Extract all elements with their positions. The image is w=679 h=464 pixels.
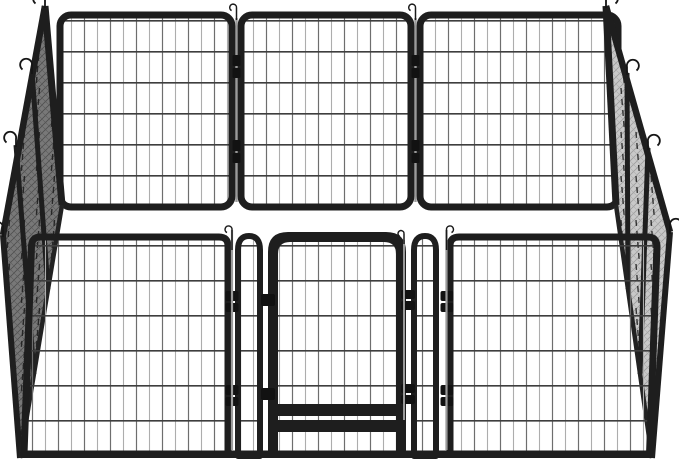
front-wall [20, 226, 657, 458]
anchor-hook-icon [648, 135, 660, 150]
playpen-image [0, 0, 679, 464]
front-bottom-rail [20, 451, 653, 459]
gate-door [261, 231, 415, 458]
product-photo [0, 0, 679, 464]
back-panel [420, 15, 618, 207]
anchor-hook-icon [4, 132, 16, 147]
gate-section-right [414, 236, 436, 456]
gate-hinge [261, 294, 275, 306]
gate-hinge [261, 388, 275, 400]
back-panel [241, 15, 411, 207]
front-panel-left [24, 237, 228, 455]
front-panel-right [450, 237, 657, 455]
back-wall [60, 4, 618, 207]
door-mesh [278, 242, 396, 451]
back-panel [60, 15, 232, 207]
anchor-hook-icon [627, 60, 639, 75]
gate-section-left [238, 236, 260, 456]
